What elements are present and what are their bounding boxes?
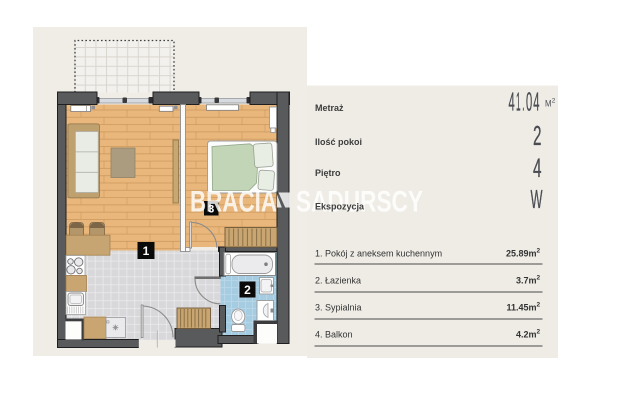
svg-text:4: 4: [509, 87, 515, 117]
svg-text:1: 1: [516, 87, 521, 117]
svg-text:Ilość pokoi: Ilość pokoi: [315, 137, 362, 147]
svg-text:4: 4: [533, 87, 539, 117]
svg-text:25.89m: 25.89m: [506, 249, 537, 259]
svg-text:W: W: [531, 184, 543, 214]
svg-text:2: 2: [552, 98, 556, 105]
svg-text:2: 2: [244, 283, 251, 297]
svg-text:Metraż: Metraż: [315, 103, 344, 113]
svg-text:Piętro: Piętro: [315, 168, 341, 178]
svg-text:4. Balkon: 4. Balkon: [315, 330, 353, 340]
svg-text:BRACIA: BRACIA: [190, 186, 277, 219]
svg-text:3. Sypialnia: 3. Sypialnia: [315, 303, 362, 313]
svg-text:M: M: [545, 99, 552, 110]
svg-text:2: 2: [537, 275, 541, 282]
svg-text:2: 2: [537, 248, 541, 255]
svg-text:4: 4: [533, 153, 542, 183]
svg-text:.: .: [522, 87, 524, 117]
svg-text:2. Łazienka: 2. Łazienka: [315, 276, 361, 286]
svg-text:1: 1: [143, 244, 150, 258]
svg-text:2: 2: [537, 302, 541, 309]
svg-text:1. Pokój z aneksem kuchennym: 1. Pokój z aneksem kuchennym: [315, 249, 442, 259]
svg-text:11.45m: 11.45m: [506, 303, 536, 313]
svg-text:Ekspozycja: Ekspozycja: [315, 202, 365, 212]
svg-text:2: 2: [533, 120, 542, 151]
svg-text:0: 0: [526, 87, 532, 117]
svg-text:4.2m: 4.2m: [516, 330, 537, 340]
svg-text:2: 2: [537, 329, 541, 336]
svg-text:3.7m: 3.7m: [516, 276, 537, 286]
